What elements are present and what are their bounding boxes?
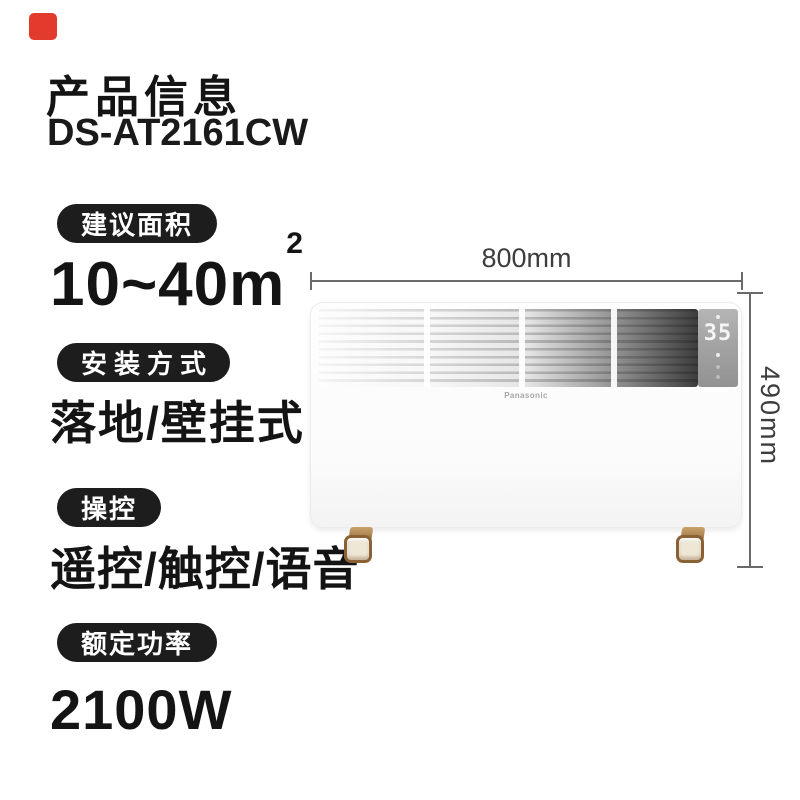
area-number: 10~40m [50, 250, 285, 319]
foot-wheel [344, 535, 372, 563]
grille-divider [519, 309, 525, 387]
width-dimension-line [310, 280, 743, 282]
spec-value-rated-power: 2100W [50, 682, 232, 738]
temperature-readout: 35 [698, 321, 738, 346]
product-info-card: 产品信息 DS-AT2161CW 建议面积 10~40m2 安装方式 落地/壁挂… [0, 0, 800, 800]
spec-badge-control: 操控 [57, 488, 161, 527]
spec-value-control: 遥控/触控/语音 [50, 546, 360, 592]
area-superscript: 2 [286, 227, 304, 260]
panel-touch-dot [716, 365, 720, 369]
width-dimension-label: 800mm [310, 243, 743, 274]
heater-grille [319, 309, 698, 387]
caster-foot-right [676, 527, 710, 569]
grille-divider [611, 309, 617, 387]
spec-badge-installation: 安装方式 [57, 343, 230, 382]
grille-shading [319, 309, 698, 387]
foot-wheel [676, 535, 704, 563]
heater-product-image: 35 Panasonic [310, 302, 742, 528]
spec-badge-recommended-area: 建议面积 [57, 204, 217, 243]
spec-value-recommended-area: 10~40m2 [50, 254, 303, 316]
brand-logo-text: Panasonic [311, 391, 741, 400]
height-dimension-line [749, 292, 751, 568]
grille-divider [424, 309, 430, 387]
panel-indicator-dot [716, 353, 720, 357]
spec-badge-rated-power: 额定功率 [57, 623, 217, 662]
product-model: DS-AT2161CW [47, 112, 308, 155]
red-corner-mark [29, 13, 57, 40]
panel-touch-dot [716, 375, 720, 379]
spec-value-installation: 落地/壁挂式 [50, 400, 305, 446]
heater-display-panel: 35 [698, 309, 738, 387]
height-dimension-label: 490mm [754, 366, 785, 466]
caster-foot-left [344, 527, 378, 569]
panel-indicator-dot [716, 315, 720, 319]
